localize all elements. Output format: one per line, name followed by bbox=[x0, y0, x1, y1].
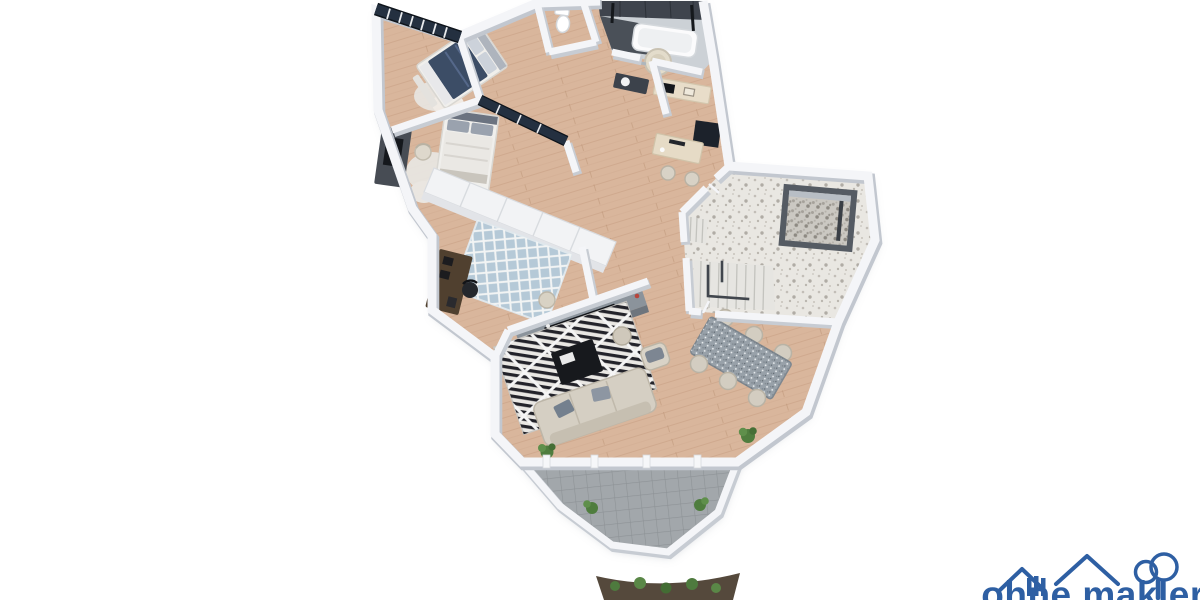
floor-plan-canvas: ohne makler bbox=[0, 0, 1200, 600]
stool bbox=[685, 172, 699, 186]
staircase-down bbox=[690, 260, 775, 310]
elevator-shaft bbox=[782, 187, 855, 249]
floor-plan-3d-render: ohne makler bbox=[0, 0, 1200, 600]
armchair-bedroom bbox=[415, 144, 431, 160]
stool bbox=[661, 166, 675, 180]
desk-chair bbox=[462, 281, 478, 298]
watermark-logo: ohne makler bbox=[981, 554, 1200, 600]
balcony bbox=[522, 462, 739, 555]
pouf bbox=[539, 292, 555, 308]
garden-strip bbox=[596, 573, 740, 600]
ottoman bbox=[613, 327, 631, 345]
deco-red bbox=[635, 294, 640, 299]
wc bbox=[555, 8, 571, 33]
watermark-wordmark: ohne makler bbox=[981, 574, 1200, 600]
sink bbox=[684, 88, 695, 97]
